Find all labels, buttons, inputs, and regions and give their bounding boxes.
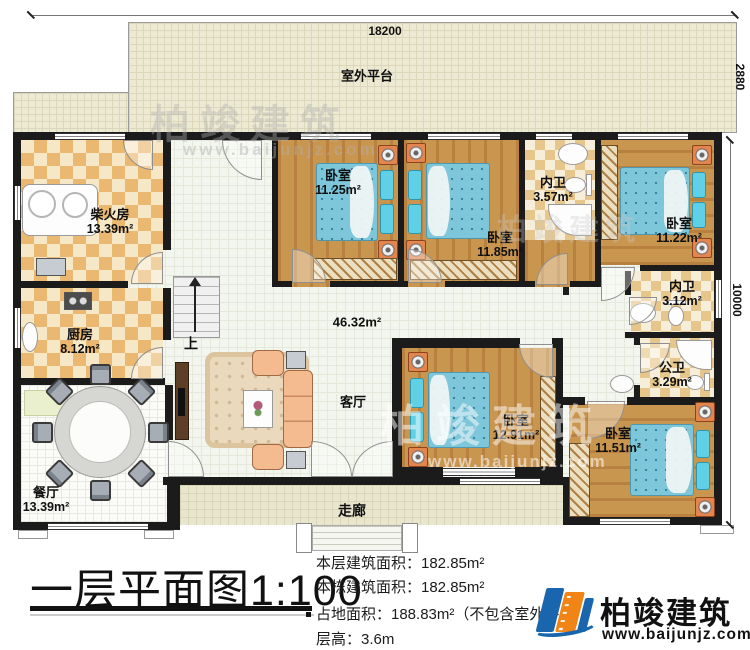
room-label-kitchen: 厨房8.12m² xyxy=(60,327,100,357)
wall xyxy=(519,140,525,287)
wall xyxy=(634,385,640,397)
wall xyxy=(563,397,585,405)
bed-sheet xyxy=(430,375,450,445)
outdoor-platform-left xyxy=(13,92,129,133)
wardrobe xyxy=(601,145,618,240)
chair xyxy=(90,480,111,501)
side-table xyxy=(286,351,306,369)
pillow xyxy=(380,204,394,234)
window xyxy=(443,468,515,476)
armchair xyxy=(252,444,284,470)
room-label-bath2: 内卫3.12m² xyxy=(662,279,702,309)
room-area: 12.91m² xyxy=(493,428,540,443)
chair xyxy=(148,422,169,443)
window xyxy=(600,518,670,525)
toilet-tank xyxy=(586,174,592,196)
pillow xyxy=(408,204,422,234)
wall xyxy=(640,265,714,271)
sink xyxy=(558,143,588,165)
room-name: 公卫 xyxy=(659,360,685,375)
room-area: 3.29m² xyxy=(652,375,692,390)
wardrobe xyxy=(569,443,590,517)
dimension-top-value: 18200 xyxy=(368,24,401,38)
wall xyxy=(714,132,722,525)
wall xyxy=(330,281,408,287)
room-label-bath3: 公卫3.29m² xyxy=(652,360,692,390)
room-area: 3.57m² xyxy=(533,190,573,205)
nightstand xyxy=(378,145,398,165)
room-area: 3.12m² xyxy=(662,294,702,309)
coffee-table xyxy=(243,390,273,428)
floor-plan: 18200 2880 10000 室外平台 xyxy=(0,0,750,650)
room-label-bath1: 内卫3.57m² xyxy=(533,175,573,205)
room-area: 13.39m² xyxy=(23,500,70,515)
room-name: 厨房 xyxy=(67,327,93,342)
toilet xyxy=(668,306,684,326)
room-area: 11.51m² xyxy=(595,441,641,456)
porch-post xyxy=(296,523,312,553)
wall xyxy=(540,477,563,485)
info-floor-height: 层高：3.6m xyxy=(316,628,394,649)
room-name: 卧室 xyxy=(503,413,529,428)
pillow xyxy=(380,170,394,200)
tv xyxy=(178,388,185,416)
wall xyxy=(272,140,278,287)
room-label-dining: 餐厅13.39m² xyxy=(23,485,70,515)
chair xyxy=(90,364,111,385)
room-label-bedroom2: 卧室11.85m² xyxy=(477,230,523,260)
info-floor-area: 本层建筑面积：182.85m² xyxy=(316,552,484,573)
wall xyxy=(163,140,171,250)
stairs-up-label: 上 xyxy=(184,337,198,352)
hall-area-label: 46.32m² xyxy=(333,315,381,330)
basin xyxy=(62,192,88,218)
window xyxy=(301,133,371,140)
pillow xyxy=(410,412,424,442)
room-name: 卧室 xyxy=(325,168,351,183)
info-bullet xyxy=(306,612,311,617)
window xyxy=(618,133,688,140)
sofa xyxy=(283,370,313,448)
sink xyxy=(22,322,38,352)
wardrobe xyxy=(540,376,556,467)
room-label-firewood: 柴火房13.39m² xyxy=(87,207,134,237)
porch-post xyxy=(402,523,418,553)
room-name: 内卫 xyxy=(540,175,566,190)
platform-label: 室外平台 xyxy=(341,69,393,84)
armchair xyxy=(252,350,284,376)
cooktop xyxy=(64,292,92,310)
dimension-side-value: 10000 xyxy=(730,283,744,316)
room-name: 卧室 xyxy=(605,426,631,441)
room-area: 11.25m² xyxy=(315,183,361,198)
room-label-living: 客厅 xyxy=(340,395,366,410)
footing-pad xyxy=(700,525,734,534)
bed-sheet xyxy=(428,166,450,236)
window xyxy=(14,186,21,220)
wall xyxy=(402,467,443,477)
wall xyxy=(556,338,563,477)
window xyxy=(428,133,500,140)
entrance-steps xyxy=(312,525,402,551)
wall xyxy=(21,281,128,288)
nightstand xyxy=(408,447,428,467)
room-label-bedroom1: 卧室11.25m² xyxy=(315,168,361,198)
pillow xyxy=(696,430,710,458)
pillow xyxy=(408,170,422,200)
title-underline xyxy=(30,606,312,611)
dimension-line-top xyxy=(30,15,737,16)
nightstand xyxy=(378,240,398,260)
room-name: 卧室 xyxy=(487,230,513,245)
pillow xyxy=(692,172,706,198)
window xyxy=(715,280,722,318)
room-area: 8.12m² xyxy=(60,342,100,357)
wall xyxy=(148,522,180,530)
stairs-arrow-head xyxy=(189,277,201,286)
chair xyxy=(32,422,53,443)
basin xyxy=(28,190,56,218)
wall xyxy=(570,281,601,287)
room-label-bedroom5: 卧室11.51m² xyxy=(595,426,641,456)
nightstand xyxy=(692,145,712,165)
wall xyxy=(163,477,310,485)
brand-site: www.baijunjz.com xyxy=(602,626,750,644)
wall xyxy=(392,338,402,477)
sink xyxy=(610,375,634,393)
dimension-line-right xyxy=(730,140,731,525)
pillow xyxy=(410,378,424,408)
nightstand xyxy=(695,497,715,517)
nightstand xyxy=(408,352,428,372)
pillow xyxy=(696,462,710,490)
wall xyxy=(563,287,569,295)
nightstand xyxy=(695,402,715,422)
stairs-arrow xyxy=(194,284,196,332)
room-area: 11.85m² xyxy=(477,245,523,260)
title-underline-shadow xyxy=(30,614,314,616)
outdoor-platform xyxy=(128,22,737,133)
footing-pad xyxy=(18,530,48,539)
wardrobe xyxy=(313,258,397,280)
wall xyxy=(163,288,171,340)
window xyxy=(14,308,21,348)
corridor-label: 走廊 xyxy=(338,504,366,519)
window xyxy=(55,133,125,140)
wall xyxy=(515,467,556,477)
info-building-area: 本栋建筑面积：182.85m² xyxy=(316,576,484,597)
window xyxy=(460,478,540,485)
room-label-bedroom3: 卧室11.22m² xyxy=(656,216,702,246)
side-table xyxy=(286,451,306,469)
room-label-bedroom4: 卧室12.91m² xyxy=(493,413,540,443)
corridor-floor xyxy=(180,485,563,525)
toilet-tank xyxy=(704,373,710,391)
dining-table-top xyxy=(69,401,131,463)
brand-logo-icon xyxy=(535,584,599,644)
window xyxy=(536,133,572,140)
stove xyxy=(36,258,66,276)
room-name: 柴火房 xyxy=(90,207,129,222)
room-area: 11.22m² xyxy=(656,231,702,246)
wall xyxy=(13,522,48,530)
room-area: 13.39m² xyxy=(87,222,134,237)
room-name: 内卫 xyxy=(669,279,695,294)
room-name: 餐厅 xyxy=(33,485,59,500)
wall xyxy=(393,477,460,485)
wall xyxy=(445,281,535,287)
wall xyxy=(398,140,404,287)
window xyxy=(48,523,148,530)
bed-sheet xyxy=(666,427,692,493)
footing-pad xyxy=(144,530,174,539)
wall xyxy=(402,338,520,348)
nightstand xyxy=(406,143,426,163)
wall xyxy=(272,281,292,287)
dimension-platform-depth: 2880 xyxy=(733,64,747,91)
room-name: 卧室 xyxy=(666,216,692,231)
